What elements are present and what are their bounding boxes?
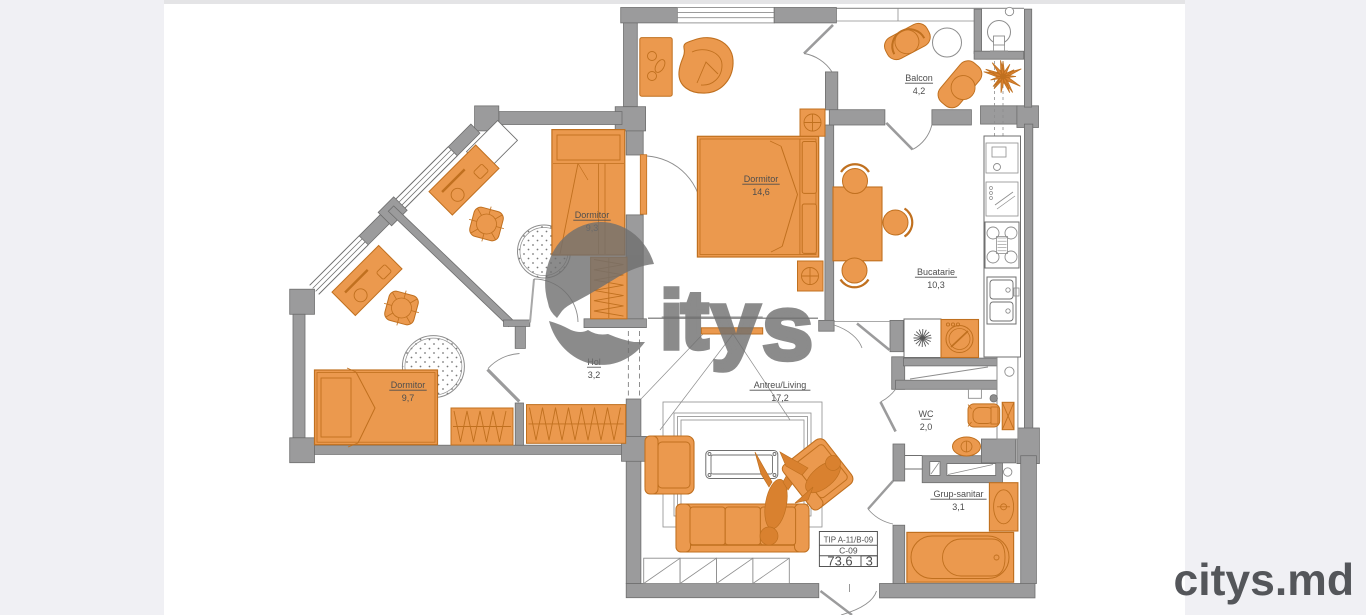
svg-text:s: s	[762, 277, 813, 379]
svg-text:Dormitor: Dormitor	[744, 174, 779, 184]
svg-text:Dormitor: Dormitor	[575, 210, 610, 220]
svg-text:73.6: 73.6	[827, 553, 852, 568]
svg-text:Grup-sanitar: Grup-sanitar	[933, 489, 983, 499]
svg-text:Balcon: Balcon	[905, 73, 933, 83]
svg-text:14,6: 14,6	[752, 187, 770, 197]
svg-text:17,2: 17,2	[771, 393, 789, 403]
svg-text:3,2: 3,2	[588, 370, 601, 380]
svg-text:3: 3	[866, 553, 873, 568]
svg-text:4,2: 4,2	[913, 86, 926, 96]
svg-text:i: i	[660, 274, 683, 367]
svg-text:citys.md: citys.md	[1173, 556, 1354, 605]
svg-text:Dormitor: Dormitor	[391, 380, 426, 390]
svg-text:WC: WC	[919, 409, 934, 419]
svg-text:Antreu/Living: Antreu/Living	[754, 380, 807, 390]
svg-text:t: t	[681, 274, 709, 367]
svg-text:3,1: 3,1	[952, 502, 965, 512]
svg-text:TIP A-11/B-09: TIP A-11/B-09	[824, 535, 874, 544]
svg-text:2,0: 2,0	[920, 422, 933, 432]
svg-text:y: y	[711, 272, 760, 371]
svg-text:10,3: 10,3	[927, 280, 945, 290]
svg-text:Bucatarie: Bucatarie	[917, 267, 955, 277]
svg-text:9,7: 9,7	[402, 393, 415, 403]
